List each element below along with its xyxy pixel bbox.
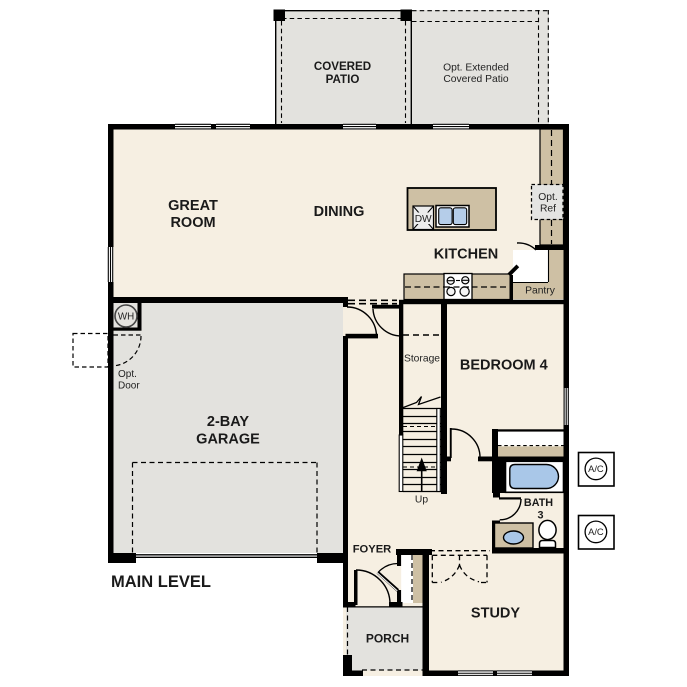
svg-text:GREAT: GREAT	[168, 198, 218, 214]
svg-text:Opt.: Opt.	[538, 192, 557, 203]
svg-text:A/C: A/C	[588, 526, 604, 537]
svg-text:BATH: BATH	[524, 497, 553, 509]
svg-text:BEDROOM 4: BEDROOM 4	[460, 357, 548, 373]
svg-text:PATIO: PATIO	[326, 73, 360, 86]
svg-text:COVERED: COVERED	[314, 60, 371, 73]
svg-text:WH: WH	[118, 312, 134, 323]
svg-text:2-BAY: 2-BAY	[207, 414, 250, 430]
svg-text:Storage: Storage	[404, 354, 440, 365]
svg-text:KITCHEN: KITCHEN	[434, 247, 498, 263]
svg-text:DW: DW	[415, 214, 432, 225]
svg-text:DINING: DINING	[314, 204, 365, 220]
svg-text:Ref: Ref	[540, 203, 556, 214]
svg-text:Pantry: Pantry	[525, 286, 556, 297]
svg-text:3: 3	[537, 510, 543, 522]
svg-text:FOYER: FOYER	[353, 544, 392, 556]
svg-text:Opt. Extended: Opt. Extended	[443, 63, 509, 74]
svg-text:STUDY: STUDY	[471, 606, 520, 622]
svg-text:ROOM: ROOM	[170, 215, 215, 231]
svg-text:MAIN LEVEL: MAIN LEVEL	[111, 573, 211, 591]
svg-text:PORCH: PORCH	[366, 632, 409, 646]
svg-text:A/C: A/C	[588, 463, 604, 474]
svg-text:Covered Patio: Covered Patio	[443, 74, 509, 85]
svg-text:GARAGE: GARAGE	[196, 431, 260, 447]
svg-text:Opt.: Opt.	[118, 369, 137, 380]
svg-text:Door: Door	[118, 380, 140, 391]
svg-text:Up: Up	[415, 495, 428, 506]
